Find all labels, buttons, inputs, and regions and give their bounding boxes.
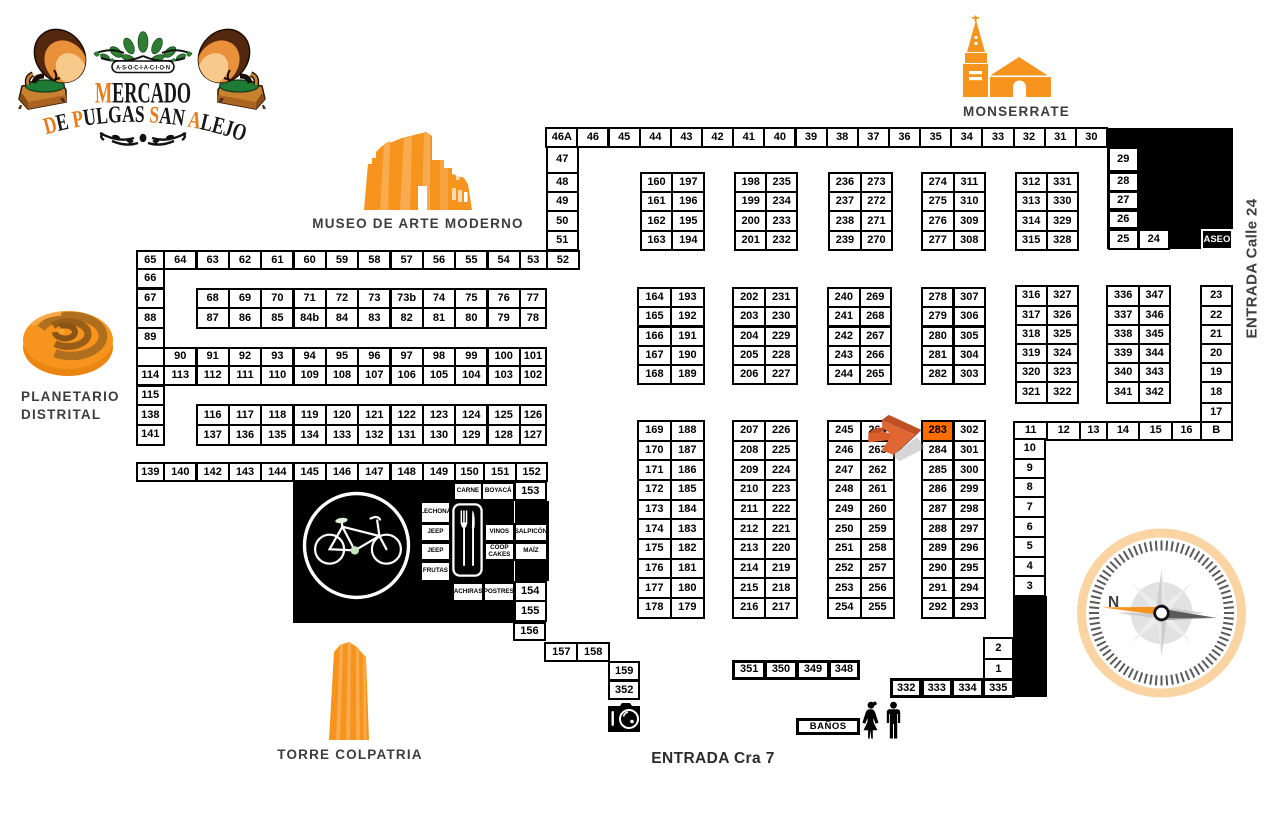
- svg-text:A·S·O·C·I·A·C·I·O·N: A·S·O·C·I·A·C·I·O·N: [116, 65, 170, 72]
- svg-text:N: N: [1108, 594, 1119, 611]
